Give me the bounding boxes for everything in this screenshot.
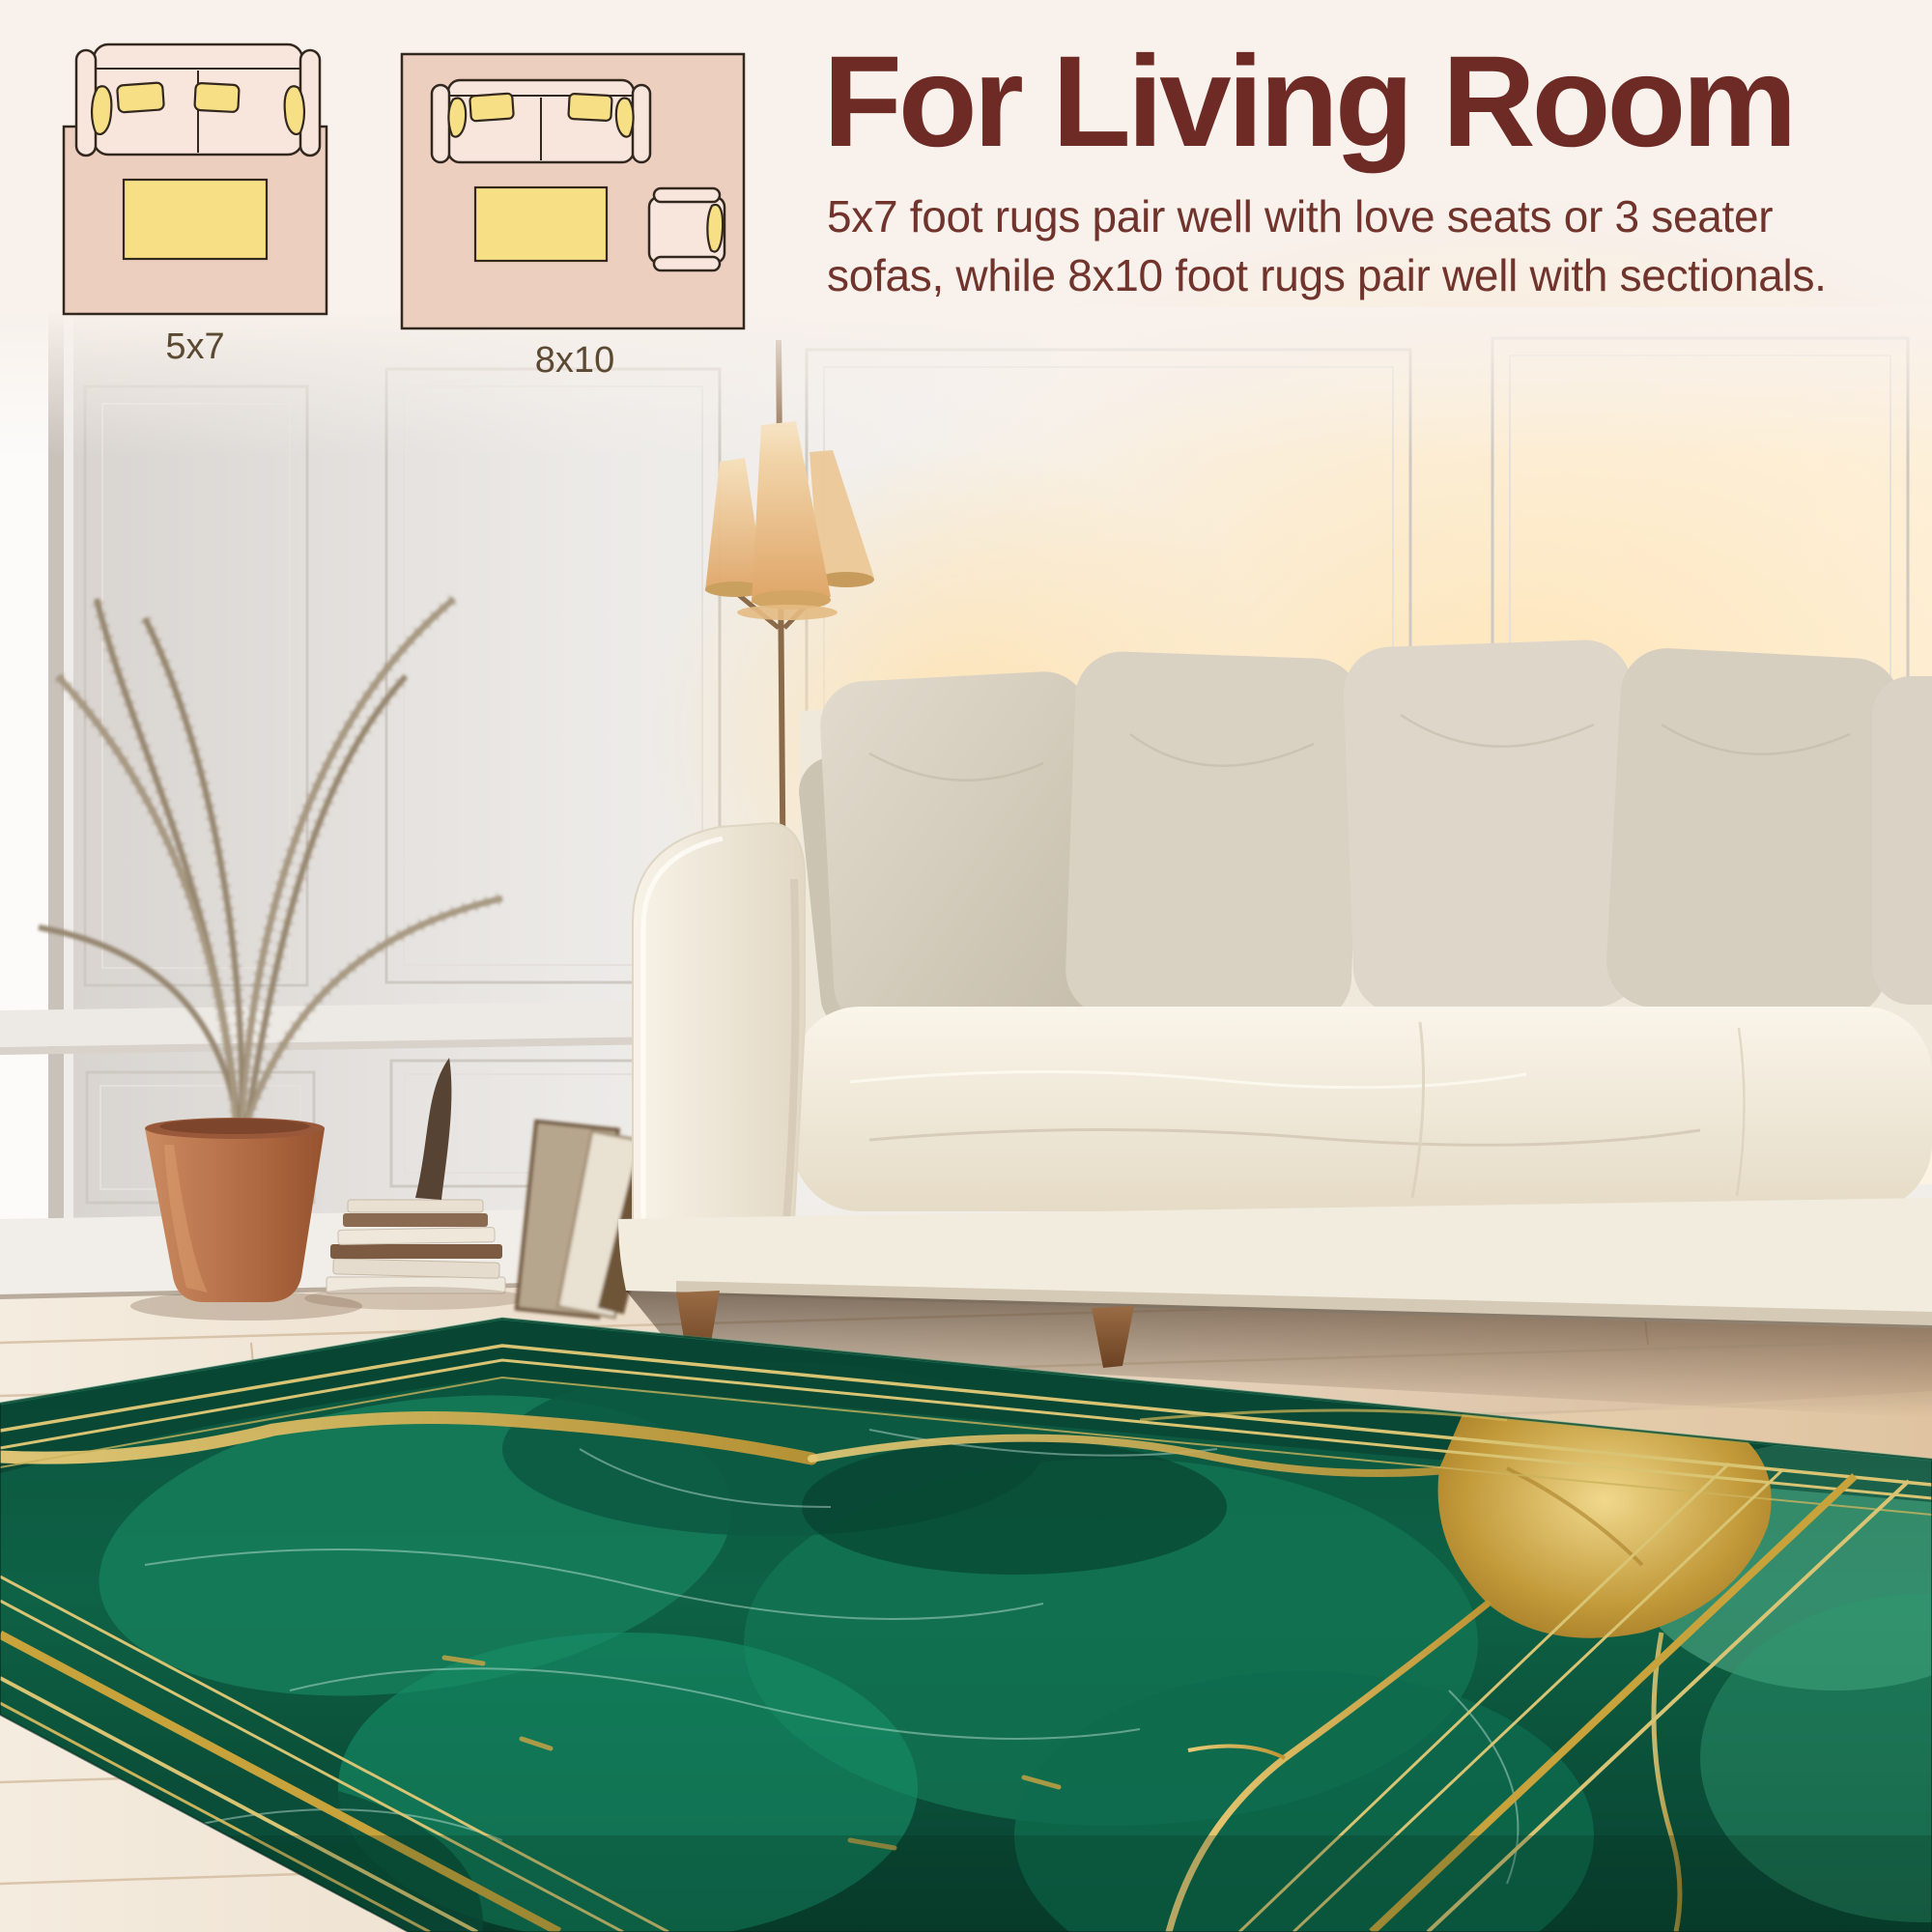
pillow: [448, 99, 466, 137]
pillow: [707, 205, 723, 252]
sofa-topview: [76, 44, 320, 156]
subtitle-line-2: sofas, while 8x10 foot rugs pair well wi…: [827, 246, 1932, 305]
diagram-label-5x7: 5x7: [99, 327, 292, 368]
pillow: [469, 93, 514, 121]
pillow: [616, 99, 634, 137]
sofa: [618, 639, 1932, 1418]
armchair-topview: [649, 188, 724, 270]
sofa-topview: [432, 80, 650, 162]
subtitle-line-1: 5x7 foot rugs pair well with love seats …: [827, 187, 1932, 246]
pillow: [568, 94, 611, 121]
pillow: [194, 83, 239, 112]
pillow: [117, 82, 164, 112]
page-title: For Living Room: [823, 35, 1793, 171]
rug-product-infographic: For Living Room 5x7 foot rugs pair well …: [0, 0, 1932, 1932]
diagram-8x10: [402, 54, 744, 328]
coffee-table-topview: [475, 187, 607, 261]
page-subtitle: 5x7 foot rugs pair well with love seats …: [827, 187, 1932, 305]
sofa-pillows: [818, 639, 1932, 1031]
seat-cushion: [792, 1007, 1932, 1211]
coffee-table-topview: [124, 180, 267, 259]
sofa-arm: [633, 823, 805, 1256]
pillow: [285, 86, 304, 134]
diagram-label-8x10: 8x10: [478, 340, 671, 382]
pillow: [92, 86, 111, 134]
diagram-5x7: [64, 44, 327, 314]
